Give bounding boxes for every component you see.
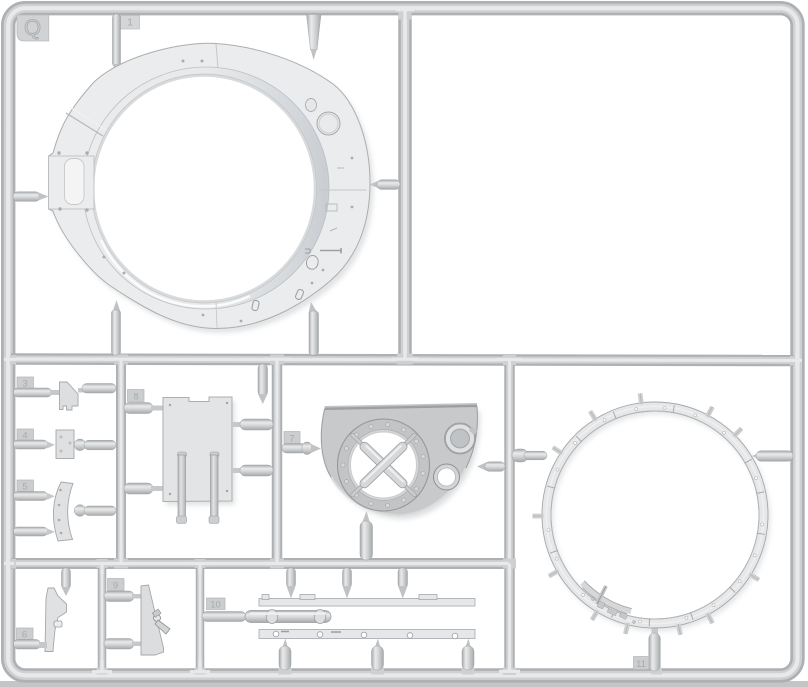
svg-text:11: 11 <box>636 659 646 670</box>
svg-text:1: 1 <box>127 17 133 29</box>
svg-text:8: 8 <box>133 392 138 403</box>
svg-text:5: 5 <box>22 482 27 493</box>
svg-text:10: 10 <box>210 600 221 611</box>
svg-text:6: 6 <box>22 630 27 641</box>
svg-text:7: 7 <box>289 434 294 445</box>
svg-text:9: 9 <box>113 581 118 592</box>
svg-text:Q: Q <box>24 15 41 40</box>
